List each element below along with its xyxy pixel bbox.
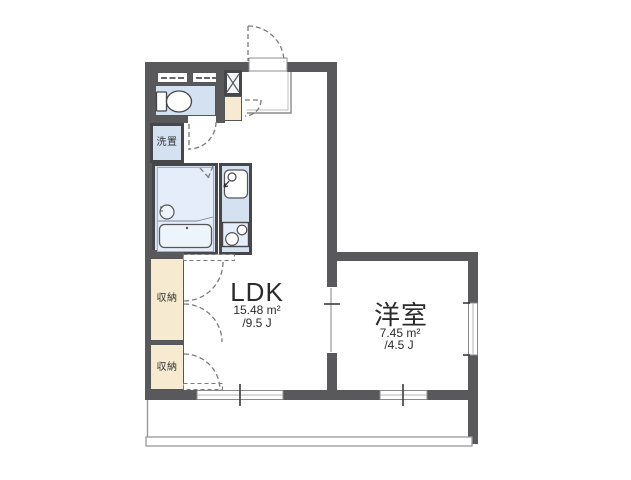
- toilet-room: [155, 85, 216, 116]
- fixtures-layer: [0, 0, 631, 480]
- floor-plan: 洗置 収納 収納 LDK 15.48 m² /9.5 J 洋室 7.45 m² …: [0, 0, 631, 480]
- shoe-cabinet: [224, 96, 242, 121]
- partition-sliding-door: [324, 288, 340, 352]
- window-south-ldk: [197, 384, 283, 406]
- bathroom: [152, 163, 218, 255]
- kitchen: [219, 163, 252, 255]
- ldk-area-jo: /9.5 J: [212, 317, 302, 331]
- entrance-door: [248, 26, 287, 71]
- laundry-label: 洗置: [150, 137, 184, 149]
- outer-wall-right-upper: [327, 62, 337, 261]
- storage-upper-label: 収納: [150, 293, 184, 305]
- western-room-area-jo: /4.5 J: [356, 339, 442, 353]
- storage-top-wall: [150, 250, 184, 258]
- outer-wall-right-a: [468, 261, 478, 303]
- storage-lower-label: 収納: [150, 362, 184, 374]
- shoe-cabinet-door-arc: [245, 100, 261, 116]
- entrance-genkan-step: [247, 72, 291, 113]
- partition-wall-lower: [327, 353, 337, 390]
- outer-wall-bottom-b: [283, 390, 380, 400]
- window-south-western-room: [380, 384, 427, 406]
- hall-door-arc: [189, 122, 216, 150]
- balcony-railing: [146, 437, 472, 446]
- toilet-bottom-wall: [150, 116, 188, 123]
- outer-wall-bottom-a: [145, 390, 197, 400]
- hanging-shelf-left: [157, 72, 188, 83]
- window-east-western-room: [463, 303, 478, 355]
- partition-wall-upper: [327, 261, 337, 287]
- outer-wall-bottom-c: [427, 390, 478, 400]
- water-heater-box: [224, 70, 242, 96]
- balcony: [146, 400, 472, 446]
- western-room-top-wall: [327, 252, 478, 261]
